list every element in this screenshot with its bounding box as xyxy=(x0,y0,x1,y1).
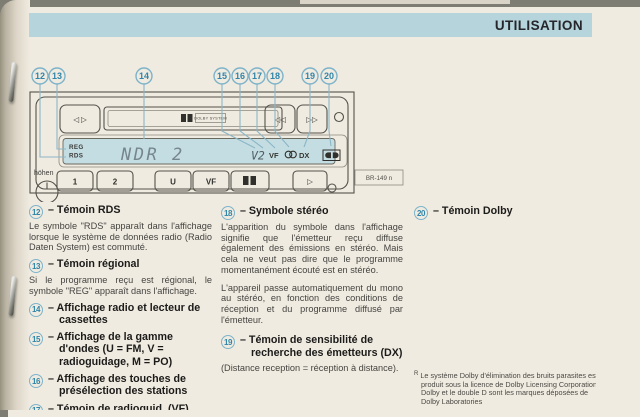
section-17-heading: 17 – Témoin de radioguid. (VF) xyxy=(29,403,212,410)
callout-19: 19 xyxy=(302,68,318,84)
section-19-body: (Distance reception = réception à distan… xyxy=(221,363,403,374)
treble-label: höhen xyxy=(34,170,54,177)
dolby-footnote: R Le système Dolby d'élimination des bru… xyxy=(414,370,596,407)
section-18-heading: 18 – Symbole stéréo xyxy=(221,205,403,220)
band-preset-display: V2 xyxy=(251,149,265,163)
section-number-badge: 19 xyxy=(221,335,235,349)
callout-line-12 xyxy=(40,84,66,157)
svg-text:18: 18 xyxy=(270,71,280,81)
section-20-heading: 20 – Témoin Dolby xyxy=(414,205,596,220)
section-title: – Affichage radio et lecteur de cassette… xyxy=(48,302,212,327)
section-18-body: L'apparition du symbole dans l'affichage… xyxy=(221,222,403,276)
section-number-badge: 15 xyxy=(29,332,43,346)
figure-ref: BR-149 n xyxy=(366,175,393,182)
dolby-button xyxy=(231,171,269,191)
svg-text:16: 16 xyxy=(235,71,245,81)
dolby-d-right-icon xyxy=(188,114,193,122)
cassette-slot-inner xyxy=(108,111,278,127)
preset-button-1-label: 1 xyxy=(73,178,78,187)
footnote-text: Le système Dolby d'élimination des bruit… xyxy=(420,371,596,406)
callout-15: 15 xyxy=(214,68,230,84)
callout-12: 12 xyxy=(32,68,48,84)
radio-diagram: ◁ ▷ DOLBY SYSTEM ◁◁ ▷▷ REG RDS NDR 2 V2 … xyxy=(29,61,404,202)
footnote-marker: R xyxy=(414,371,418,377)
callout-line-20 xyxy=(329,84,331,146)
reg-indicator: REG xyxy=(69,144,84,151)
section-13-heading: 13 – Témoin régional xyxy=(29,258,212,273)
section-title: – Affichage des touches de présélection … xyxy=(48,373,212,398)
callout-17: 17 xyxy=(249,68,265,84)
svg-text:14: 14 xyxy=(139,71,149,81)
section-19-heading: 19 – Témoin de sensibilité de recherche … xyxy=(221,334,403,359)
dolby-button-icon xyxy=(251,176,257,185)
preset-button-2-label: 2 xyxy=(113,178,118,187)
section-number-badge: 16 xyxy=(29,374,43,388)
section-title: – Affichage de la gamme d'ondes (U = FM,… xyxy=(48,331,212,368)
column-2: 18 – Symbole stéréo L'apparition du symb… xyxy=(221,199,403,410)
section-number-badge: 13 xyxy=(29,259,43,273)
section-header-band: UTILISATION xyxy=(29,13,592,37)
vf-indicator: VF xyxy=(269,151,279,160)
screw-hole xyxy=(335,113,344,122)
text-columns: 12 – Témoin RDS Le symbole "RDS" apparaî… xyxy=(29,199,596,410)
station-display: NDR 2 xyxy=(120,145,185,165)
callout-18: 18 xyxy=(267,68,283,84)
dolby-indicator-icon xyxy=(333,152,339,158)
section-title: – Témoin de radioguid. (VF) xyxy=(48,403,189,410)
section-number-badge: 20 xyxy=(414,206,428,220)
section-18-body2: L'appareil passe automatiquement du mono… xyxy=(221,283,403,326)
dolby-button-icon xyxy=(243,176,249,185)
section-15-heading: 15 – Affichage de la gamme d'ondes (U = … xyxy=(29,331,212,368)
fast-forward-arrows-icon: ▷▷ xyxy=(306,115,318,124)
section-number-badge: 17 xyxy=(29,404,43,410)
callout-14: 14 xyxy=(136,68,152,84)
section-12-heading: 12 – Témoin RDS xyxy=(29,204,212,219)
section-title: – Témoin Dolby xyxy=(433,205,513,217)
scanned-manual-page: { "header": { "title": "UTILISATION" }, … xyxy=(0,0,640,417)
svg-text:17: 17 xyxy=(252,71,262,81)
play-button-icon: ▷ xyxy=(307,177,313,186)
rds-indicator: RDS xyxy=(69,153,83,160)
screw-hole xyxy=(328,184,336,192)
callout-16: 16 xyxy=(232,68,248,84)
section-number-badge: 12 xyxy=(29,205,43,219)
svg-text:19: 19 xyxy=(305,71,315,81)
section-14-heading: 14 – Affichage radio et lecteur de casse… xyxy=(29,302,212,327)
vf-button-label: VF xyxy=(206,178,216,187)
svg-text:15: 15 xyxy=(217,71,227,81)
section-title: – Témoin régional xyxy=(48,258,139,270)
section-number-badge: 14 xyxy=(29,303,43,317)
dolby-indicator-icon xyxy=(325,152,331,158)
svg-text:13: 13 xyxy=(52,71,62,81)
page-title: UTILISATION xyxy=(495,18,592,33)
dx-indicator: DX xyxy=(299,151,309,160)
section-title: – Témoin de sensibilité de recherche des… xyxy=(240,334,403,359)
section-title: – Témoin RDS xyxy=(48,204,120,216)
callout-20: 20 xyxy=(321,68,337,84)
svg-text:12: 12 xyxy=(35,71,45,81)
page-edge xyxy=(300,0,510,4)
section-13-body: Si le programme reçu est régional, le sy… xyxy=(29,275,212,296)
section-number-badge: 18 xyxy=(221,206,235,220)
rewind-arrows-icon: ◁◁ xyxy=(274,115,286,124)
callout-13: 13 xyxy=(49,68,65,84)
band-button-u-label: U xyxy=(170,178,176,187)
section-16-heading: 16 – Affichage des touches de présélecti… xyxy=(29,373,212,398)
svg-text:20: 20 xyxy=(324,71,334,81)
column-1: 12 – Témoin RDS Le symbole "RDS" apparaî… xyxy=(29,199,212,410)
section-title: – Symbole stéréo xyxy=(240,205,329,217)
cassette-direction-arrows-icon: ◁ ▷ xyxy=(73,115,87,124)
section-12-body: Le symbole "RDS" apparaît dans l'afficha… xyxy=(29,221,212,253)
column-3: 20 – Témoin Dolby R Le système Dolby d'é… xyxy=(414,199,596,410)
dolby-d-left-icon xyxy=(181,114,186,122)
